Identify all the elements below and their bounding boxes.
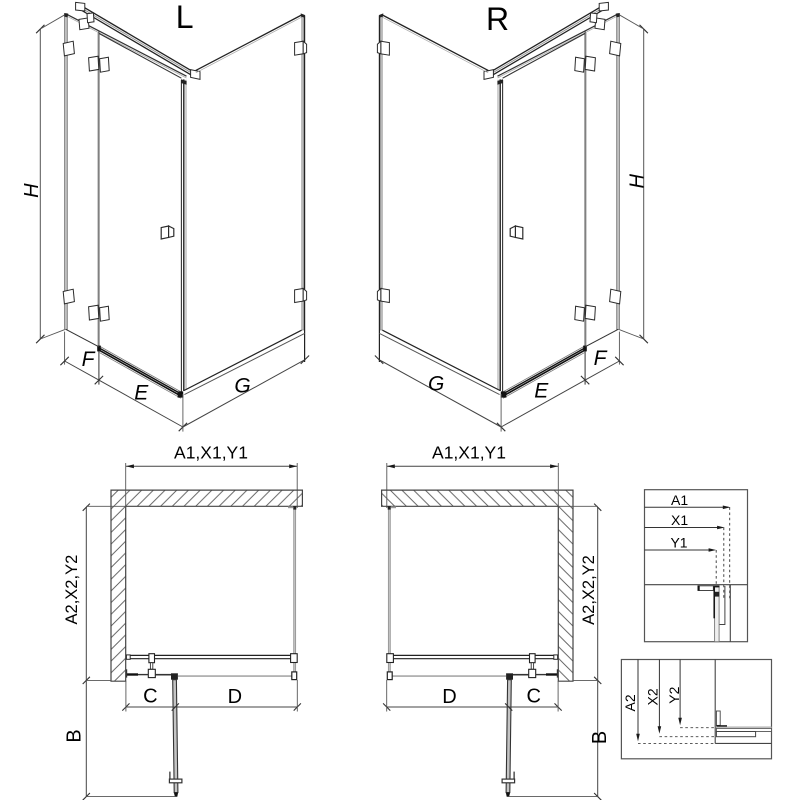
svg-text:A1: A1 <box>671 492 688 508</box>
svg-text:B: B <box>63 729 85 742</box>
svg-text:Y1: Y1 <box>670 535 687 551</box>
svg-text:E: E <box>534 380 549 403</box>
svg-text:X1: X1 <box>671 512 688 528</box>
svg-text:H: H <box>627 174 649 189</box>
svg-text:G: G <box>234 375 250 398</box>
svg-text:C: C <box>526 686 540 708</box>
svg-text:X2: X2 <box>645 688 661 705</box>
svg-text:L: L <box>176 0 194 35</box>
svg-text:D: D <box>442 686 456 708</box>
svg-text:A1,X1,Y1: A1,X1,Y1 <box>432 442 506 462</box>
svg-text:E: E <box>134 382 149 405</box>
svg-text:A2,X2,Y2: A2,X2,Y2 <box>63 555 81 625</box>
svg-text:R: R <box>486 1 509 37</box>
svg-text:G: G <box>428 373 444 396</box>
svg-text:C: C <box>143 686 157 708</box>
svg-text:Y2: Y2 <box>666 686 682 703</box>
svg-text:D: D <box>228 686 242 708</box>
svg-text:A2,X2,Y2: A2,X2,Y2 <box>580 555 598 625</box>
svg-text:F: F <box>82 348 96 371</box>
svg-text:A1,X1,Y1: A1,X1,Y1 <box>174 442 248 462</box>
svg-text:A2: A2 <box>622 694 638 711</box>
svg-text:B: B <box>589 731 611 744</box>
svg-text:F: F <box>594 347 608 370</box>
svg-text:H: H <box>21 183 43 198</box>
